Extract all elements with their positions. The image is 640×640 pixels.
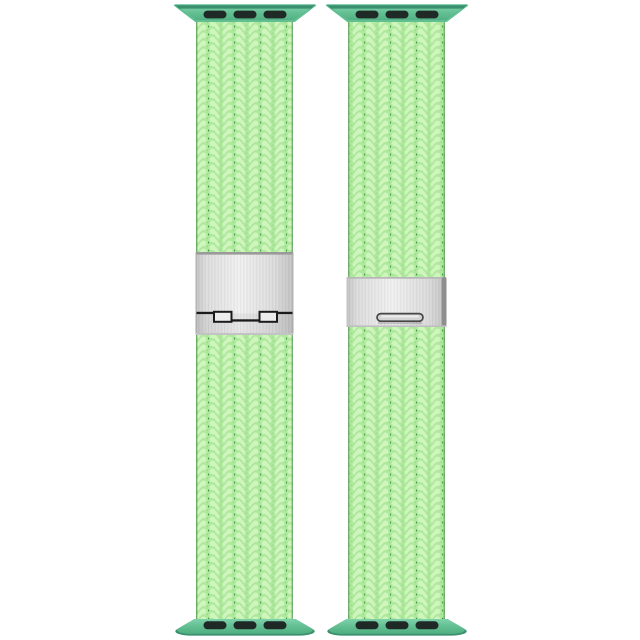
lug-adapter-bottom (327, 619, 466, 636)
clasp-hinge-line (276, 312, 293, 314)
lug-adapter-slot (204, 621, 227, 629)
clasp-hinge-tab (260, 312, 278, 322)
lug-adapter-top (327, 5, 467, 21)
clasp-front (347, 277, 447, 327)
lug-adapter-slot (356, 621, 379, 629)
lug-adapter-slot (204, 11, 227, 19)
clasp-release-slot (377, 314, 423, 322)
braid-strap-upper-segment (348, 20, 445, 278)
lug-adapter-slot (234, 11, 257, 19)
lug-adapter-top (175, 5, 315, 21)
lug-adapter-slot (356, 11, 379, 19)
lug-top-edge (175, 5, 315, 8)
clasp-bottom-edge (347, 325, 447, 327)
watch-band-front-view (327, 5, 467, 635)
lug-adapter-slot (386, 11, 409, 19)
lug-adapter-slot (386, 621, 409, 629)
braid-strap-lower-segment (348, 326, 445, 620)
lug-adapter-bottom (175, 619, 314, 636)
product-image (0, 0, 640, 640)
clasp-hinge-tab (214, 312, 232, 322)
clasp-hinge-bar (231, 319, 260, 321)
clasp-side-shadow (442, 277, 447, 327)
lug-adapter-slot (416, 11, 439, 19)
clasp-top-edge (196, 252, 294, 255)
braid-strap-upper-segment (196, 20, 293, 253)
clasp-slot-shadow (378, 322, 422, 324)
braid-strap-lower-segment (196, 334, 293, 620)
lug-adapter-slot (416, 621, 439, 629)
lug-top-edge (327, 5, 467, 8)
watch-band-back-view (175, 5, 315, 635)
lug-adapter-slot (264, 621, 287, 629)
lug-adapter-slot (264, 11, 287, 19)
fold-over-clasp-back (196, 252, 294, 335)
clasp-hinge-line (197, 312, 215, 314)
product-photo (0, 0, 640, 640)
lug-adapter-slot (234, 621, 257, 629)
clasp-bottom-edge (196, 333, 294, 335)
clasp-top-edge (347, 277, 447, 279)
